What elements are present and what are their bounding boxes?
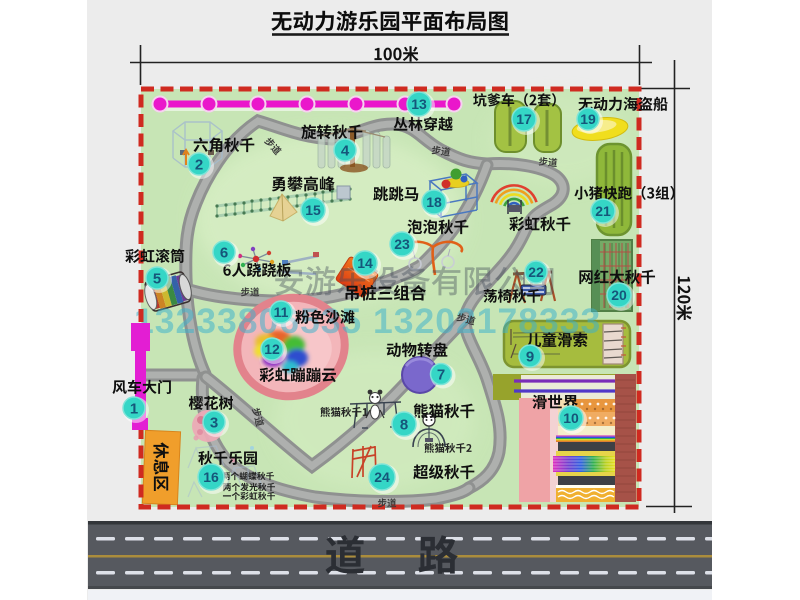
svg-text:19: 19 <box>580 111 596 127</box>
svg-text:16: 16 <box>203 469 219 485</box>
svg-text:4: 4 <box>341 142 350 159</box>
svg-text:3: 3 <box>210 414 218 431</box>
svg-text:24: 24 <box>374 469 390 485</box>
svg-text:20: 20 <box>611 287 627 303</box>
svg-text:21: 21 <box>595 203 611 219</box>
svg-text:14: 14 <box>357 255 373 271</box>
svg-text:23: 23 <box>394 236 410 252</box>
svg-text:6: 6 <box>220 244 228 261</box>
svg-text:15: 15 <box>305 202 321 218</box>
svg-text:18: 18 <box>426 194 442 210</box>
svg-text:12: 12 <box>264 341 280 357</box>
svg-text:13: 13 <box>411 96 427 112</box>
svg-text:2: 2 <box>195 156 203 173</box>
svg-text:1: 1 <box>130 400 138 417</box>
svg-text:22: 22 <box>528 264 544 280</box>
svg-text:5: 5 <box>153 270 161 287</box>
svg-text:11: 11 <box>274 304 289 320</box>
svg-text:17: 17 <box>516 111 532 127</box>
svg-text:7: 7 <box>437 366 445 383</box>
svg-text:10: 10 <box>563 410 579 426</box>
svg-text:8: 8 <box>400 416 408 433</box>
svg-text:9: 9 <box>526 348 534 365</box>
